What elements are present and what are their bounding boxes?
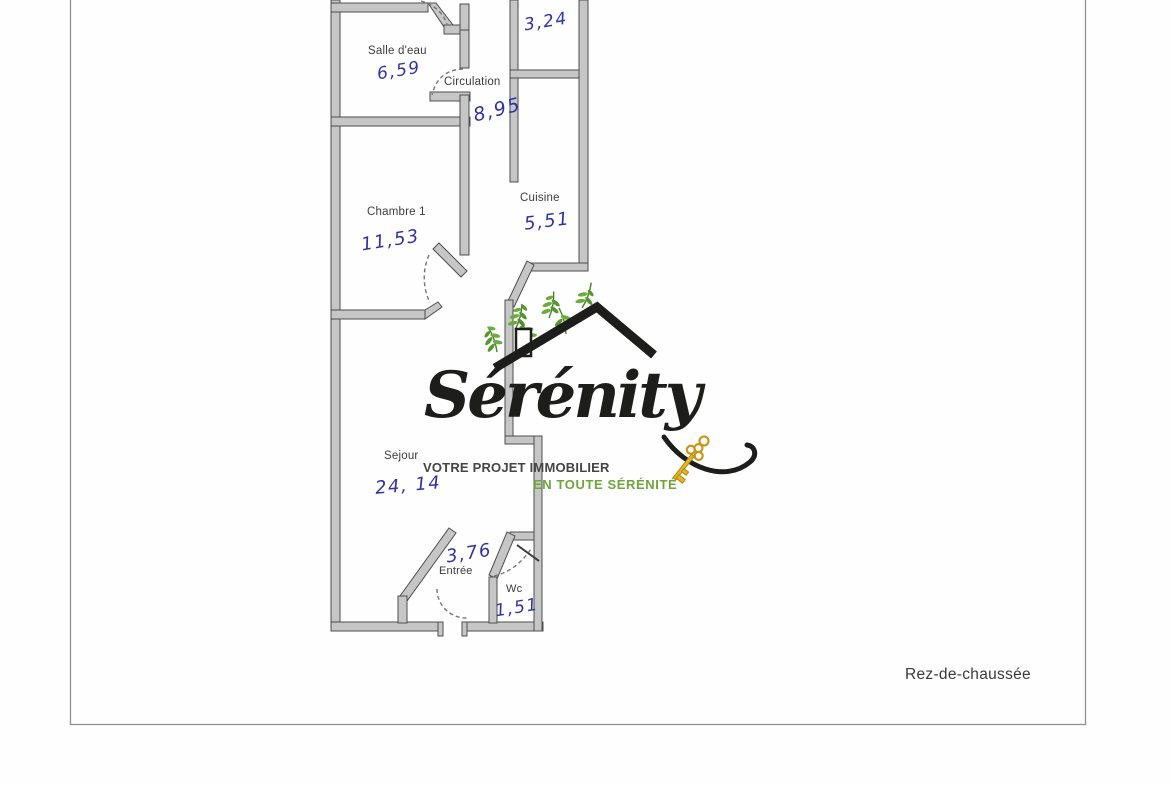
floor-caption: Rez-de-chaussée [905, 666, 1031, 684]
brand-tagline-1: VOTRE PROJET IMMOBILIER [423, 460, 610, 475]
scanned-floor-plan-page: Salle d'eau Circulation Chambre 1 Cuisin… [0, 0, 1170, 785]
brand-name: Sérénity [424, 364, 724, 428]
brand-tagline-2: EN TOUTE SÉRÉNITÉ [533, 477, 677, 492]
